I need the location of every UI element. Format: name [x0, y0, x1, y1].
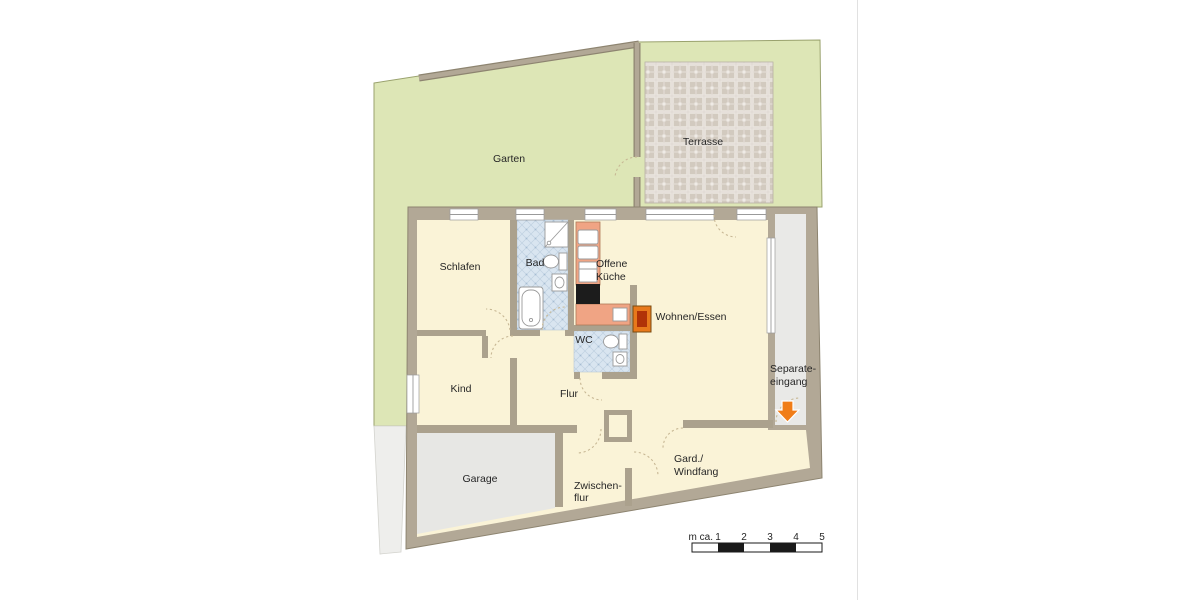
- label-flur: Flur: [560, 388, 579, 400]
- separate-entrance-corridor: [775, 214, 806, 425]
- counter-sink: [613, 308, 627, 321]
- window-schlafen: [450, 209, 478, 220]
- scale-tick-2: 2: [741, 532, 747, 543]
- sink-bad: [552, 274, 567, 291]
- window-terrace-door: [646, 209, 714, 220]
- label-wc: WC: [575, 334, 593, 346]
- bathtub: [519, 287, 543, 329]
- terrace-area: [645, 62, 773, 203]
- window-wohnen-right: [767, 238, 775, 333]
- label-garten: Garten: [493, 153, 525, 165]
- label-offene-kueche-2: Küche: [596, 271, 626, 283]
- label-terrasse: Terrasse: [683, 136, 723, 148]
- label-kind: Kind: [450, 383, 471, 395]
- label-wohnen-essen: Wohnen/Essen: [655, 311, 726, 323]
- label-zwischenflur-2: flur: [574, 492, 589, 504]
- driveway-area: [374, 426, 406, 554]
- toilet-wc: [604, 334, 628, 349]
- scale-bar: m ca. 1 2 3 4 5: [689, 532, 826, 552]
- label-garage: Garage: [462, 473, 497, 485]
- scale-tick-3: 3: [767, 532, 773, 543]
- kitchen-sink: [578, 230, 598, 244]
- sink-wc: [613, 352, 627, 366]
- scale-tick-1: 1: [715, 532, 721, 543]
- scale-tick-5: 5: [819, 532, 825, 543]
- fireplace: [633, 306, 651, 332]
- label-zwischenflur-1: Zwischen-: [574, 480, 622, 492]
- window-kind: [407, 375, 419, 413]
- window-bad: [516, 209, 544, 220]
- label-bad: Bad: [526, 257, 545, 269]
- scale-prefix: m ca.: [689, 532, 713, 543]
- shower: [545, 222, 568, 247]
- window-wohnen-top: [737, 209, 766, 220]
- label-gard-windfang-2: Windfang: [674, 466, 719, 478]
- stove: [576, 284, 600, 304]
- floor-plan-canvas: Garten Terrasse Schlafen Bad Offene Küch…: [0, 0, 1200, 600]
- page-divider-line: [857, 0, 858, 600]
- kitchen-appliance: [579, 262, 597, 282]
- label-schlafen: Schlafen: [440, 261, 481, 273]
- label-offene-kueche-1: Offene: [596, 258, 627, 270]
- floor-plan-page: Garten Terrasse Schlafen Bad Offene Küch…: [0, 0, 1200, 600]
- scale-tick-4: 4: [793, 532, 799, 543]
- label-separate-eingang-2: eingang: [770, 376, 808, 388]
- label-separate-eingang-1: Separate-: [770, 363, 817, 375]
- window-kueche: [585, 209, 616, 220]
- label-gard-windfang-1: Gard./: [674, 453, 703, 465]
